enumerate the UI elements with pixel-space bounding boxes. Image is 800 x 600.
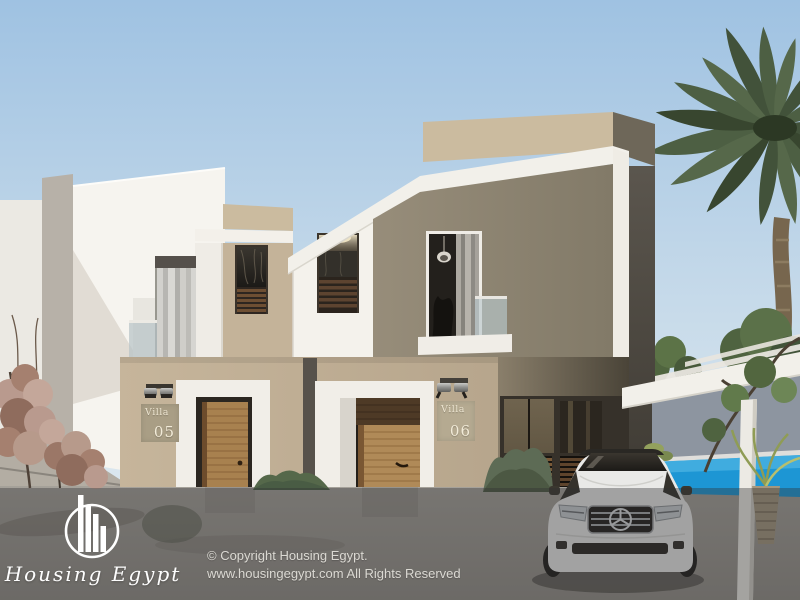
copyright-line2: www.housingegypt.com All Rights Reserved <box>207 565 461 583</box>
balcony-slab <box>418 334 512 355</box>
building-side-shadow <box>629 166 655 487</box>
villa05-upper-window <box>235 245 268 314</box>
villa-05-label: Villa <box>145 407 175 418</box>
villa-06-plate: Villa 06 <box>437 401 475 441</box>
villa06-entrance-door <box>315 381 434 487</box>
watermark-bar: Housing Egypt © Copyright Housing Egypt.… <box>0 488 800 600</box>
housing-egypt-logo-icon <box>46 491 134 561</box>
villa-06-number: 06 <box>450 422 471 440</box>
door-handle <box>238 461 243 466</box>
villa05-balcony-railing <box>129 320 157 357</box>
villa05-parapet <box>223 204 293 231</box>
villa-06-label: Villa <box>441 404 471 415</box>
car-windshield <box>578 453 667 471</box>
watermark-brand-text: Housing Egypt <box>0 562 186 586</box>
duplex-ground-floor <box>120 357 629 487</box>
copyright-text: © Copyright Housing Egypt. www.housingeg… <box>207 547 461 583</box>
villa05-curtain-window <box>155 256 196 357</box>
copyright-line1: © Copyright Housing Egypt. <box>207 547 461 565</box>
villa05-entrance-door <box>176 380 270 487</box>
villa-05-number: 05 <box>154 423 175 441</box>
villa-exterior-render: Villa 05 Villa 06 Housing Egypt © Copyri… <box>0 0 800 600</box>
villa-05-plate: Villa 05 <box>141 404 179 442</box>
villa06-balcony-window <box>426 231 482 345</box>
